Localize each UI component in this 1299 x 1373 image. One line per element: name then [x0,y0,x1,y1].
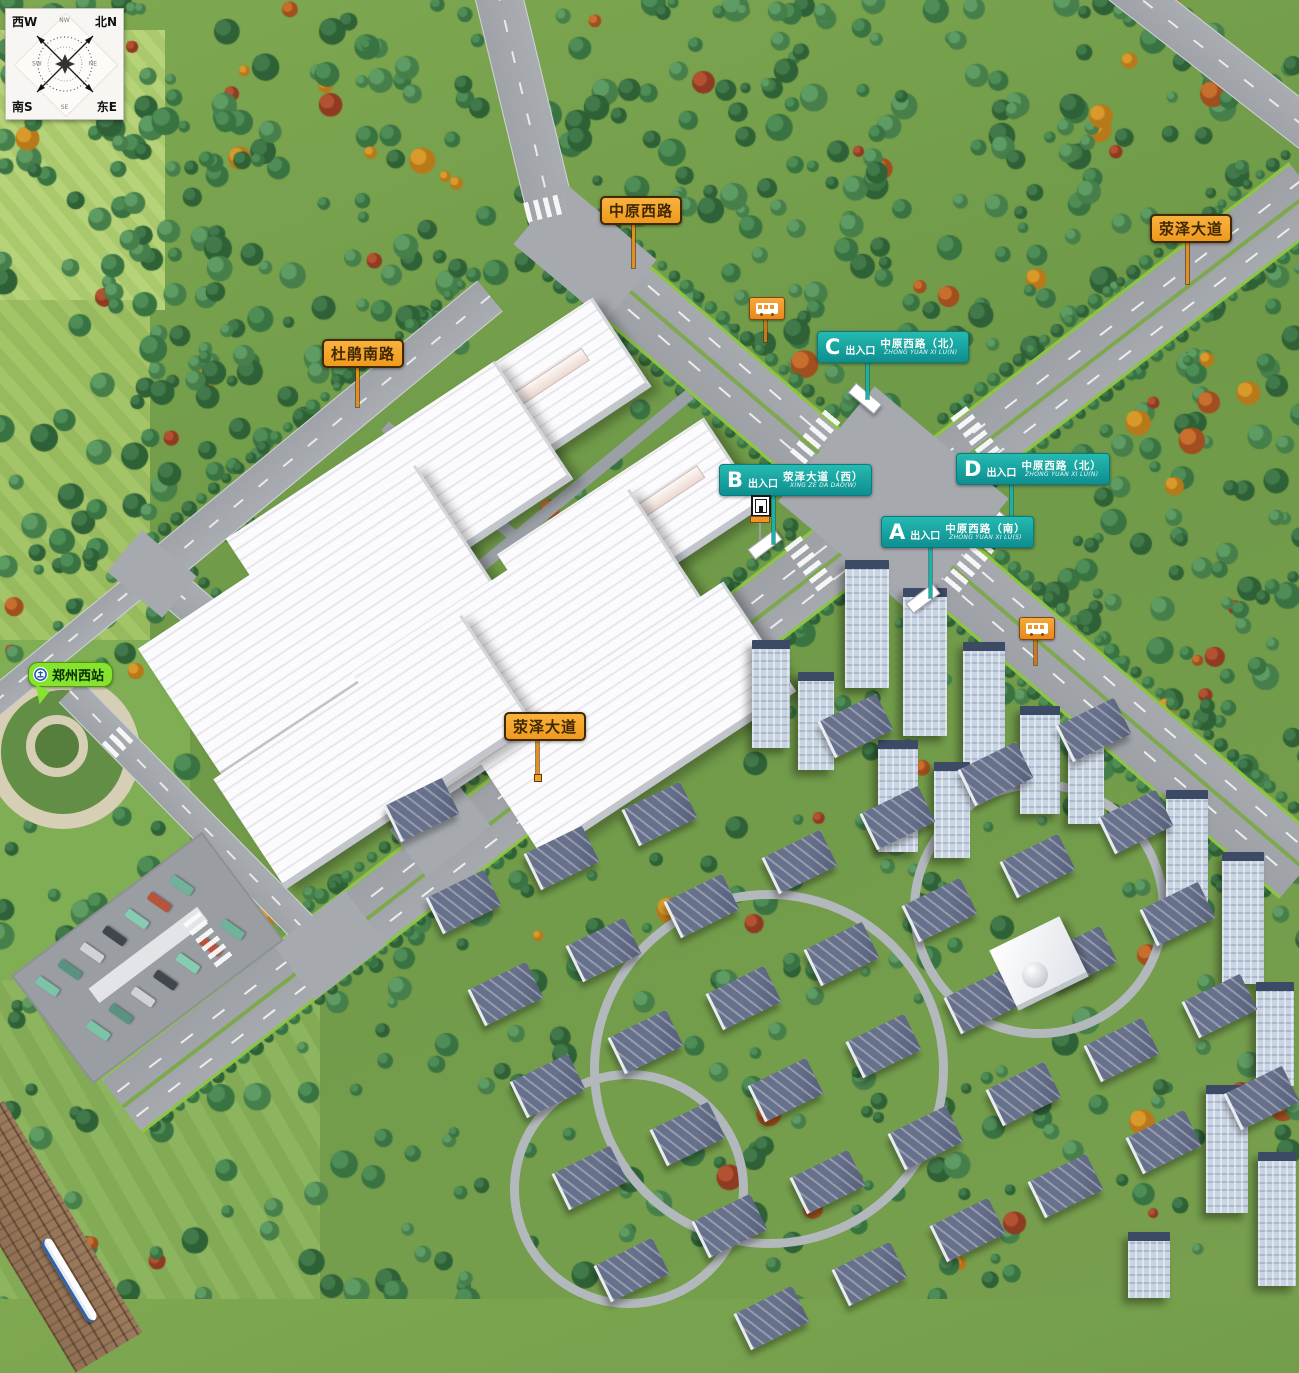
railway-station-icon [33,667,48,682]
entrance-marker-b[interactable]: B出入口 荥泽大道（西）XING ZE DA DAO(W) [719,464,872,496]
entrance-letter: B [727,470,743,491]
residential-tower [752,640,790,748]
entrance-word: 出入口 [845,342,875,360]
high-speed-train [40,1236,99,1324]
entrance-road-pinyin: XING ZE DA DAO(W) [790,483,857,490]
parked-bus [57,959,83,981]
compass-ordinal-nw: NW [59,17,69,24]
entrance-letter: A [889,522,905,543]
parked-bus [102,925,128,947]
bus-stop-stem [1034,637,1037,665]
entrance-road-pinyin: ZHONG YUAN XI LU(S) [949,535,1022,542]
parked-bus [175,952,201,974]
label-stem [356,363,359,407]
entrance-marker-d[interactable]: D出入口 中原西路（北）ZHONG YUAN XI LU(N) [956,453,1110,485]
station-name: 郑州西站 [52,665,104,684]
bus-icon [756,303,778,314]
road-label-dujuan-nanlu[interactable]: 杜鹃南路 [322,339,404,368]
roundabout-center [26,715,88,777]
entrance-letter: C [825,337,840,358]
road-label-xingze-dadao-south[interactable]: 荥泽大道 [504,712,586,741]
parked-bus [130,986,156,1008]
entrance-stem-b [772,494,775,544]
residential-tower [845,560,889,688]
residential-tower [1258,1152,1296,1286]
entrance-road-name: 中原西路（南） [945,523,1026,535]
entrance-marker-c[interactable]: C出入口 中原西路（北）ZHONG YUAN XI LU(N) [817,331,969,363]
parked-bus [108,1003,134,1025]
entrance-road-pinyin: ZHONG YUAN XI LU(N) [1025,472,1098,479]
parked-bus [220,919,246,941]
compass-north-label: 北N [95,13,117,30]
parked-bus [35,976,61,998]
entrance-marker-a[interactable]: A出入口 中原西路（南）ZHONG YUAN XI LU(S) [881,516,1034,548]
parked-bus [153,969,179,991]
parked-bus [169,874,195,896]
project-logo-caption [750,516,770,523]
bus-stop-marker[interactable] [1019,617,1055,640]
entrance-letter: D [964,459,981,480]
station-marker[interactable]: 郑州西站 [28,662,113,687]
compass-west-label: 西W [12,13,37,30]
residential-tower [1222,852,1264,984]
entrance-word: 出入口 [986,464,1016,482]
aerial-map: 中原西路 荥泽大道 杜鹃南路 荥泽大道 A出入口 中原西路（南）ZHONG YU… [0,0,1299,1299]
parked-bus [79,942,105,964]
compass-east-label: 东E [97,98,117,115]
project-logo-sign [751,495,771,517]
compass-ordinal-ne: NE [89,61,97,68]
observatory-dome [1022,962,1048,988]
label-stem [632,222,635,268]
entrance-stem-a [929,546,932,598]
parked-bus [86,1020,112,1042]
logo-sign-pole [759,522,761,540]
label-stem-tip [534,774,542,782]
label-stem [536,736,539,776]
parked-bus [124,908,150,930]
entrance-road-name: 中原西路（北） [1021,460,1102,472]
entrance-word: 出入口 [748,475,778,493]
bus-stop-marker[interactable] [749,297,785,320]
entrance-road-name: 中原西路（北） [880,338,961,350]
label-stem [1186,238,1189,284]
compass-ordinal-sw: SW [32,61,42,68]
entrance-road-name: 荥泽大道（西） [783,471,864,483]
entrance-road-pinyin: ZHONG YUAN XI LU(N) [884,350,957,357]
entrance-stem-c [866,361,869,399]
compass-south-label: 南S [12,98,33,115]
residential-tower [1128,1232,1170,1298]
residential-tower [1020,706,1060,814]
parked-bus [146,891,172,913]
compass: 西W 北N 南S 东E NW NE SE SW [5,8,124,120]
compass-ordinal-se: SE [61,104,69,111]
bus-icon [1026,623,1048,634]
road-label-xingze-dadao-north[interactable]: 荥泽大道 [1150,214,1232,243]
entrance-word: 出入口 [910,527,940,545]
road-label-zhongyuan-xilu[interactable]: 中原西路 [600,196,682,225]
